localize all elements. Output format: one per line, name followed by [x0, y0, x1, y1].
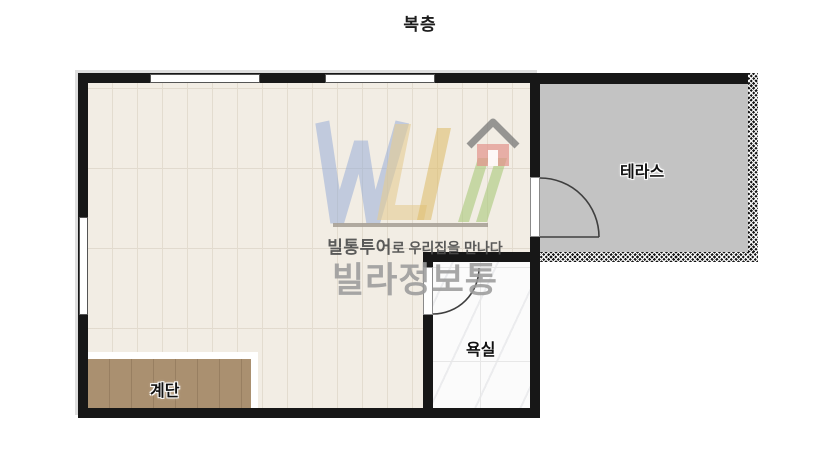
terrace-wall-right-hatched [748, 73, 758, 262]
bathroom-wall-top [423, 252, 540, 262]
stairs-label: 계단 [150, 377, 179, 401]
window-top-left [150, 74, 260, 83]
bathroom-door-opening [423, 267, 433, 315]
terrace-door-opening [530, 177, 540, 237]
terrace-wall-bottom-hatched [540, 252, 758, 262]
bathroom-label: 욕실 [466, 336, 495, 360]
bathroom-wall-left-upper [423, 252, 433, 267]
bathroom-room [433, 262, 530, 408]
terrace-wall-top [540, 73, 758, 84]
window-top-right [325, 74, 435, 83]
bathroom-wall-left-lower [423, 315, 433, 408]
floor-plan-canvas: 복층 빌통투어로 우리집을 만 [0, 0, 840, 472]
terrace-label: 테라스 [620, 158, 664, 182]
window-left-side [79, 217, 88, 315]
page-title: 복층 [0, 10, 840, 35]
